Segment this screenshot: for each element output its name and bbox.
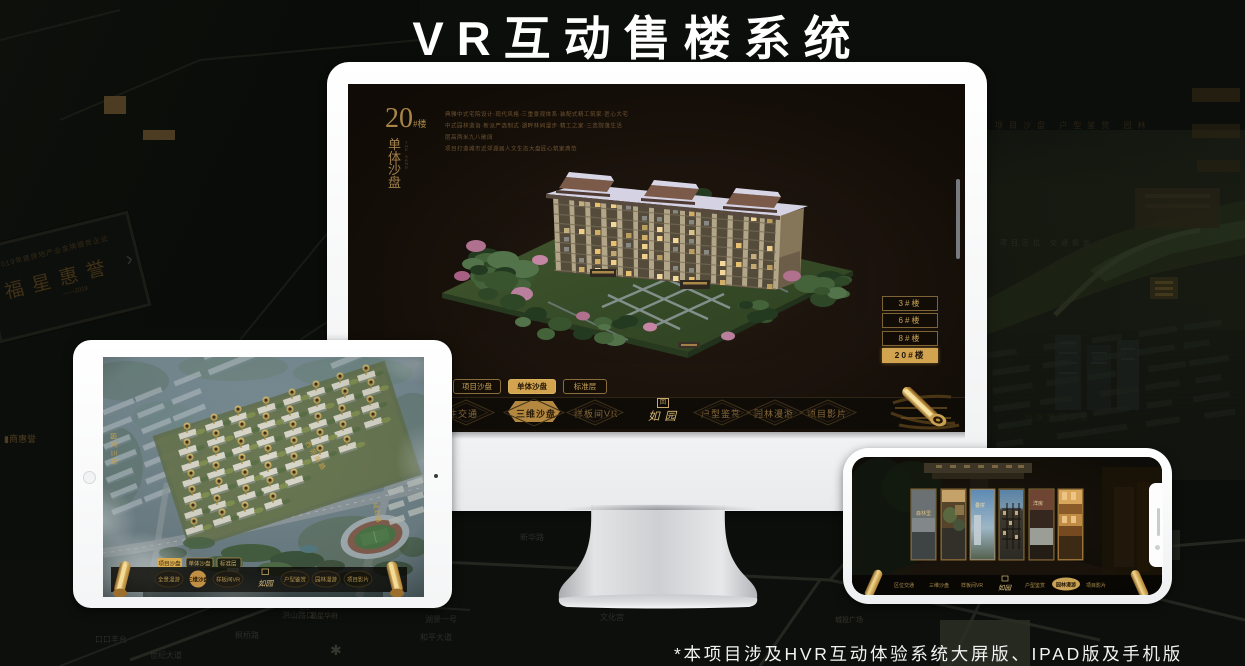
svg-text:城投广场: 城投广场 <box>835 615 863 624</box>
svg-text:户型鉴赏: 户型鉴赏 <box>1025 582 1045 589</box>
svg-text:三维沙盘: 三维沙盘 <box>187 576 210 584</box>
svg-text:单体沙盘: 单体沙盘 <box>189 560 212 568</box>
svg-text:叠拼: 叠拼 <box>975 502 985 509</box>
svg-text:项目区位 交通规划: 项目区位 交通规划 <box>1000 238 1094 247</box>
svg-text:园林漫游: 园林漫游 <box>1056 582 1076 589</box>
svg-text:标准层: 标准层 <box>220 560 237 568</box>
svg-text:洋房: 洋房 <box>1033 500 1043 507</box>
svg-text:福星华府: 福星华府 <box>310 611 338 620</box>
svg-text:如园: 如园 <box>998 584 1013 592</box>
svg-text:新华路: 新华路 <box>520 532 544 542</box>
svg-text:枫桥路: 枫桥路 <box>235 630 259 640</box>
svg-text:湖景一号: 湖景一号 <box>425 615 457 624</box>
svg-text:项目影片: 项目影片 <box>1086 582 1106 589</box>
svg-text:园林漫游: 园林漫游 <box>315 576 338 584</box>
svg-text:项目沙盘: 项目沙盘 <box>159 560 182 568</box>
svg-text:世纪大道: 世纪大道 <box>150 650 182 660</box>
svg-text:森林里: 森林里 <box>916 510 931 517</box>
svg-text:和平大道: 和平大道 <box>420 632 452 642</box>
svg-text:样板间VR: 样板间VR <box>216 576 240 584</box>
svg-text:✱: ✱ <box>330 642 342 658</box>
svg-text:山水文园实景: 山水文园实景 <box>1025 412 1091 422</box>
svg-text:区位交通: 区位交通 <box>894 582 914 589</box>
svg-text:项目影片: 项目影片 <box>347 576 369 584</box>
svg-text:户型鉴赏: 户型鉴赏 <box>284 576 307 584</box>
svg-text:样板间VR: 样板间VR <box>961 582 983 589</box>
svg-text:如园: 如园 <box>258 579 274 588</box>
svg-text:全景漫游: 全景漫游 <box>158 576 181 584</box>
svg-text:三维沙盘: 三维沙盘 <box>929 582 949 589</box>
